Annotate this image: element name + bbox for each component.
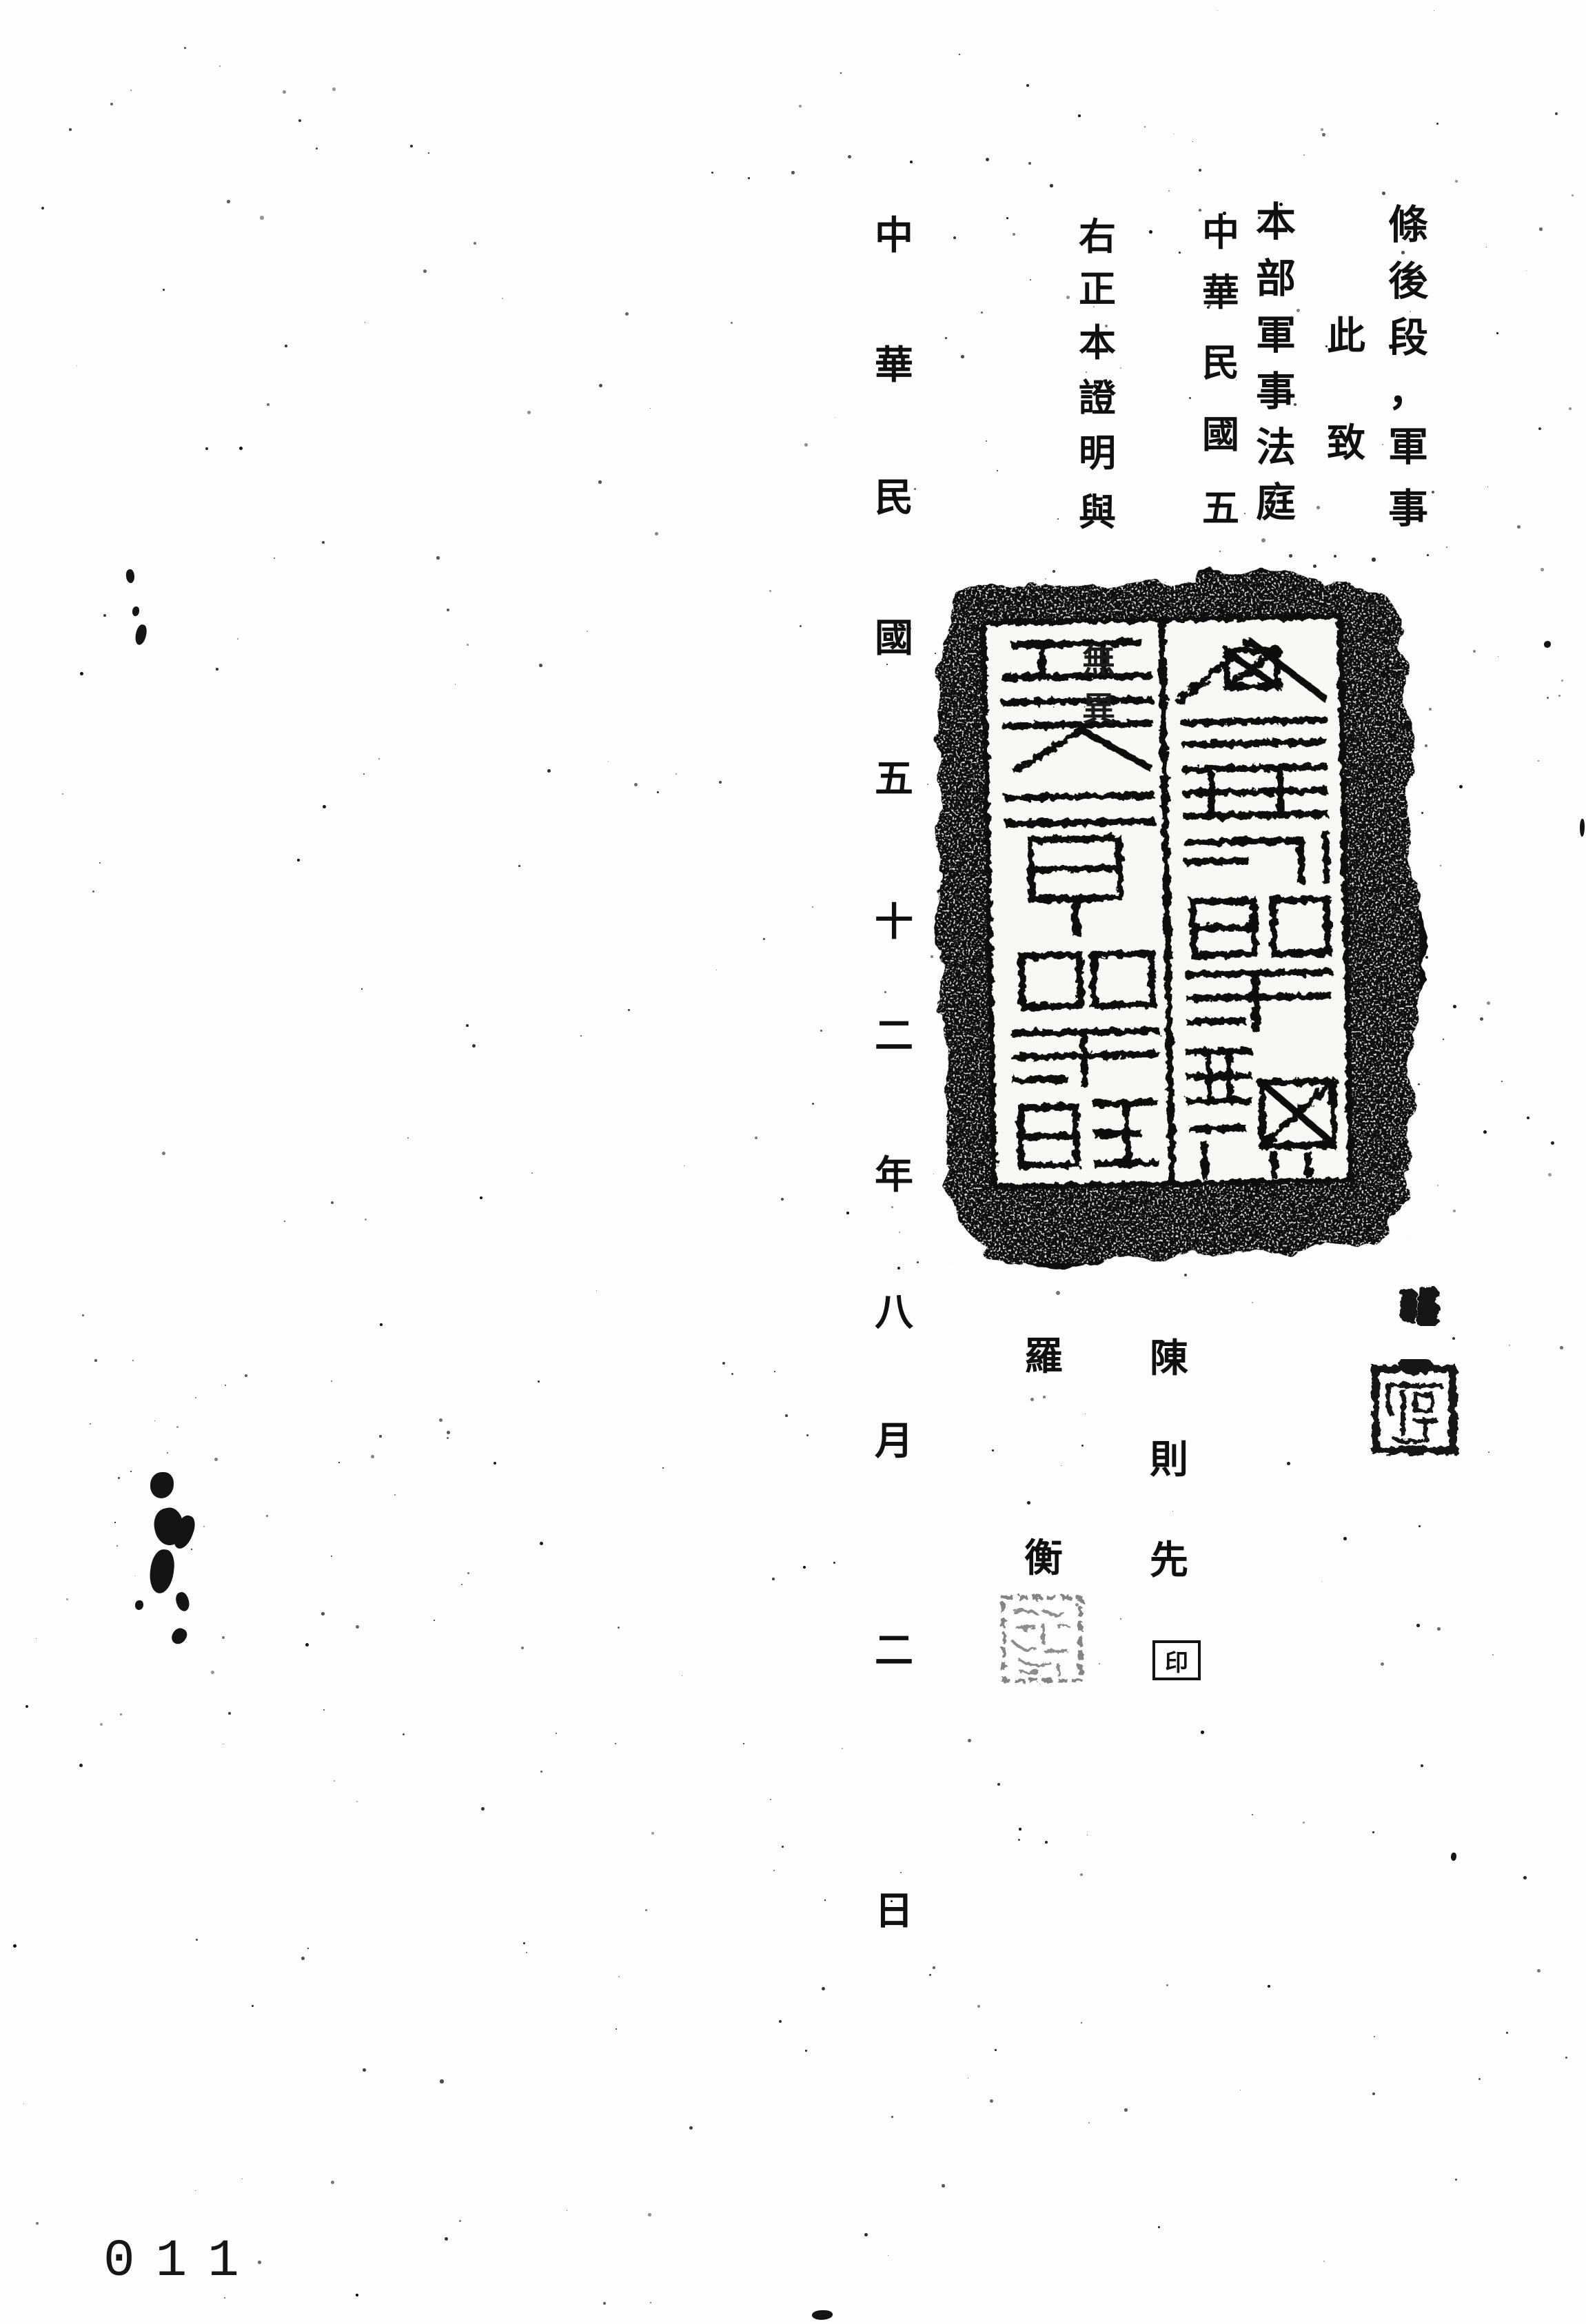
cjk-character: 則 (1150, 1441, 1188, 1480)
cjk-character: 八 (875, 1294, 913, 1332)
text-columns-layer: 條後段，軍事此致本部軍事法庭中華民國五右正本證明與無異中華民國五十二年八月二日陳… (0, 0, 1586, 2324)
cjk-character: 十 (875, 904, 913, 942)
cjk-character: 二 (875, 1632, 913, 1671)
cjk-character: 事 (1256, 372, 1296, 412)
cjk-character: 衡 (1024, 1540, 1063, 1578)
cjk-character: 致 (1327, 425, 1365, 463)
cjk-character: 五 (875, 760, 913, 799)
cjk-character: 此 (1327, 318, 1365, 356)
cjk-character: 無 (1082, 645, 1115, 678)
column-signatory-chen: 陳則先 (1150, 0, 1188, 2324)
cjk-character: 華 (875, 347, 913, 385)
column-law-citation-fragment: 條後段，軍事 (1388, 0, 1428, 2324)
column-signatory-luo: 羅衡 (1024, 0, 1063, 2324)
cjk-character: 先 (1150, 1542, 1188, 1580)
cjk-character: 軍 (1256, 316, 1296, 356)
cjk-character: 陳 (1150, 1340, 1188, 1378)
cjk-character: 事 (1388, 489, 1428, 529)
cjk-character: 民 (875, 479, 913, 518)
column-issue-date: 中華民國五十二年八月二日 (875, 0, 913, 2324)
column-cizhi: 此致 (1327, 0, 1365, 2324)
cjk-character: 年 (875, 1156, 913, 1195)
cjk-character: 本 (1256, 203, 1296, 243)
cjk-character: 國 (1202, 416, 1239, 453)
cjk-character: ， (1388, 372, 1428, 412)
column-certification-continuation: 無異 (1082, 0, 1115, 2324)
cjk-character: 法 (1256, 428, 1296, 468)
cjk-character: 國 (875, 620, 913, 658)
cjk-character: 五 (1202, 490, 1239, 527)
cjk-character: 月 (875, 1423, 913, 1461)
cjk-character: 段 (1388, 318, 1428, 358)
cjk-character: 軍 (1388, 427, 1428, 467)
column-body-date-fragment: 中華民國五 (1202, 0, 1239, 2324)
cjk-character: 日 (875, 1893, 913, 1931)
column-recipient-unit: 本部軍事法庭 (1256, 0, 1296, 2324)
cjk-character: 條 (1388, 205, 1428, 245)
cjk-character: 異 (1082, 693, 1115, 726)
document-page: 條後段，軍事此致本部軍事法庭中華民國五右正本證明與無異中華民國五十二年八月二日陳… (0, 0, 1586, 2324)
cjk-character: 華 (1202, 274, 1239, 312)
cjk-character: 羅 (1024, 1338, 1063, 1376)
cjk-character: 庭 (1256, 483, 1296, 523)
cjk-character: 部 (1256, 259, 1296, 299)
cjk-character: 後 (1388, 262, 1428, 302)
cjk-character: 中 (1202, 214, 1239, 252)
cjk-character: 民 (1202, 345, 1239, 382)
cjk-character: 中 (875, 217, 913, 256)
cjk-character: 二 (875, 1017, 913, 1056)
